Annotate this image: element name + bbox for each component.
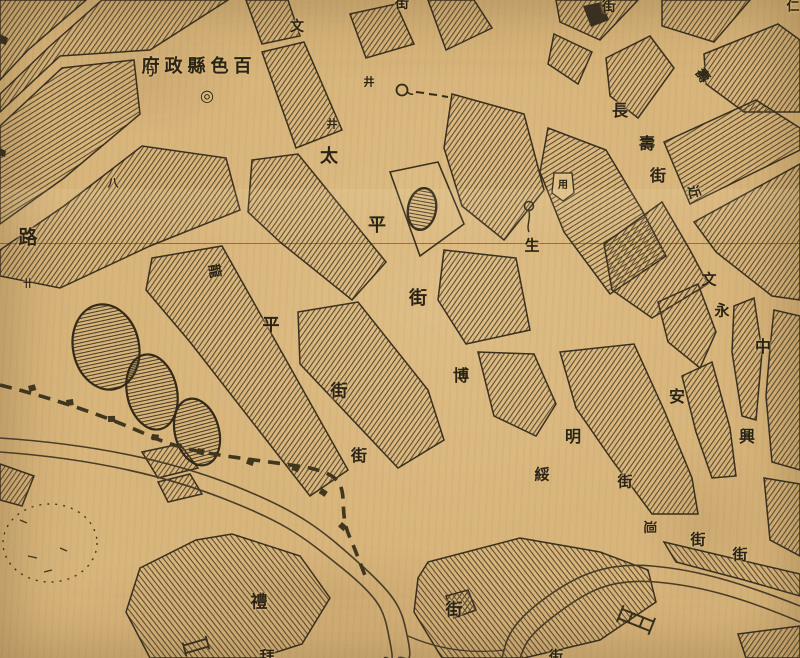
- city-block: [262, 42, 342, 148]
- city-block: [732, 298, 762, 420]
- city-block: [664, 542, 800, 596]
- dotted-pond: [3, 504, 97, 582]
- city-block: [662, 0, 750, 42]
- wall-tooth: [66, 399, 74, 406]
- city-block: [738, 626, 800, 658]
- city-block: [438, 250, 530, 344]
- city-block: [0, 464, 34, 506]
- spring-icon: [397, 85, 449, 98]
- marsh-marks: [20, 520, 67, 572]
- wall-tooth: [108, 416, 115, 422]
- city-block: [560, 344, 698, 514]
- map-canvas: 府政縣色百◎路井井太平街龍平街街街長壽街壽近街文街生用博綏明街迴街街文永安中興禮…: [0, 0, 800, 658]
- fold-crease: [0, 243, 800, 244]
- wall-tooth: [28, 384, 36, 392]
- city-block: [606, 36, 674, 118]
- city-block: [246, 0, 300, 44]
- city-block: [428, 0, 492, 50]
- city-block: [548, 34, 592, 84]
- city-block: [478, 352, 556, 436]
- city-block: [682, 362, 736, 478]
- wall-tooth: [151, 434, 159, 441]
- map-drawing: [0, 0, 800, 658]
- city-block: [350, 4, 414, 58]
- city-block: [764, 478, 800, 556]
- fold-highlight: [0, 189, 800, 243]
- city-block: [766, 310, 800, 470]
- city-block: [126, 534, 330, 658]
